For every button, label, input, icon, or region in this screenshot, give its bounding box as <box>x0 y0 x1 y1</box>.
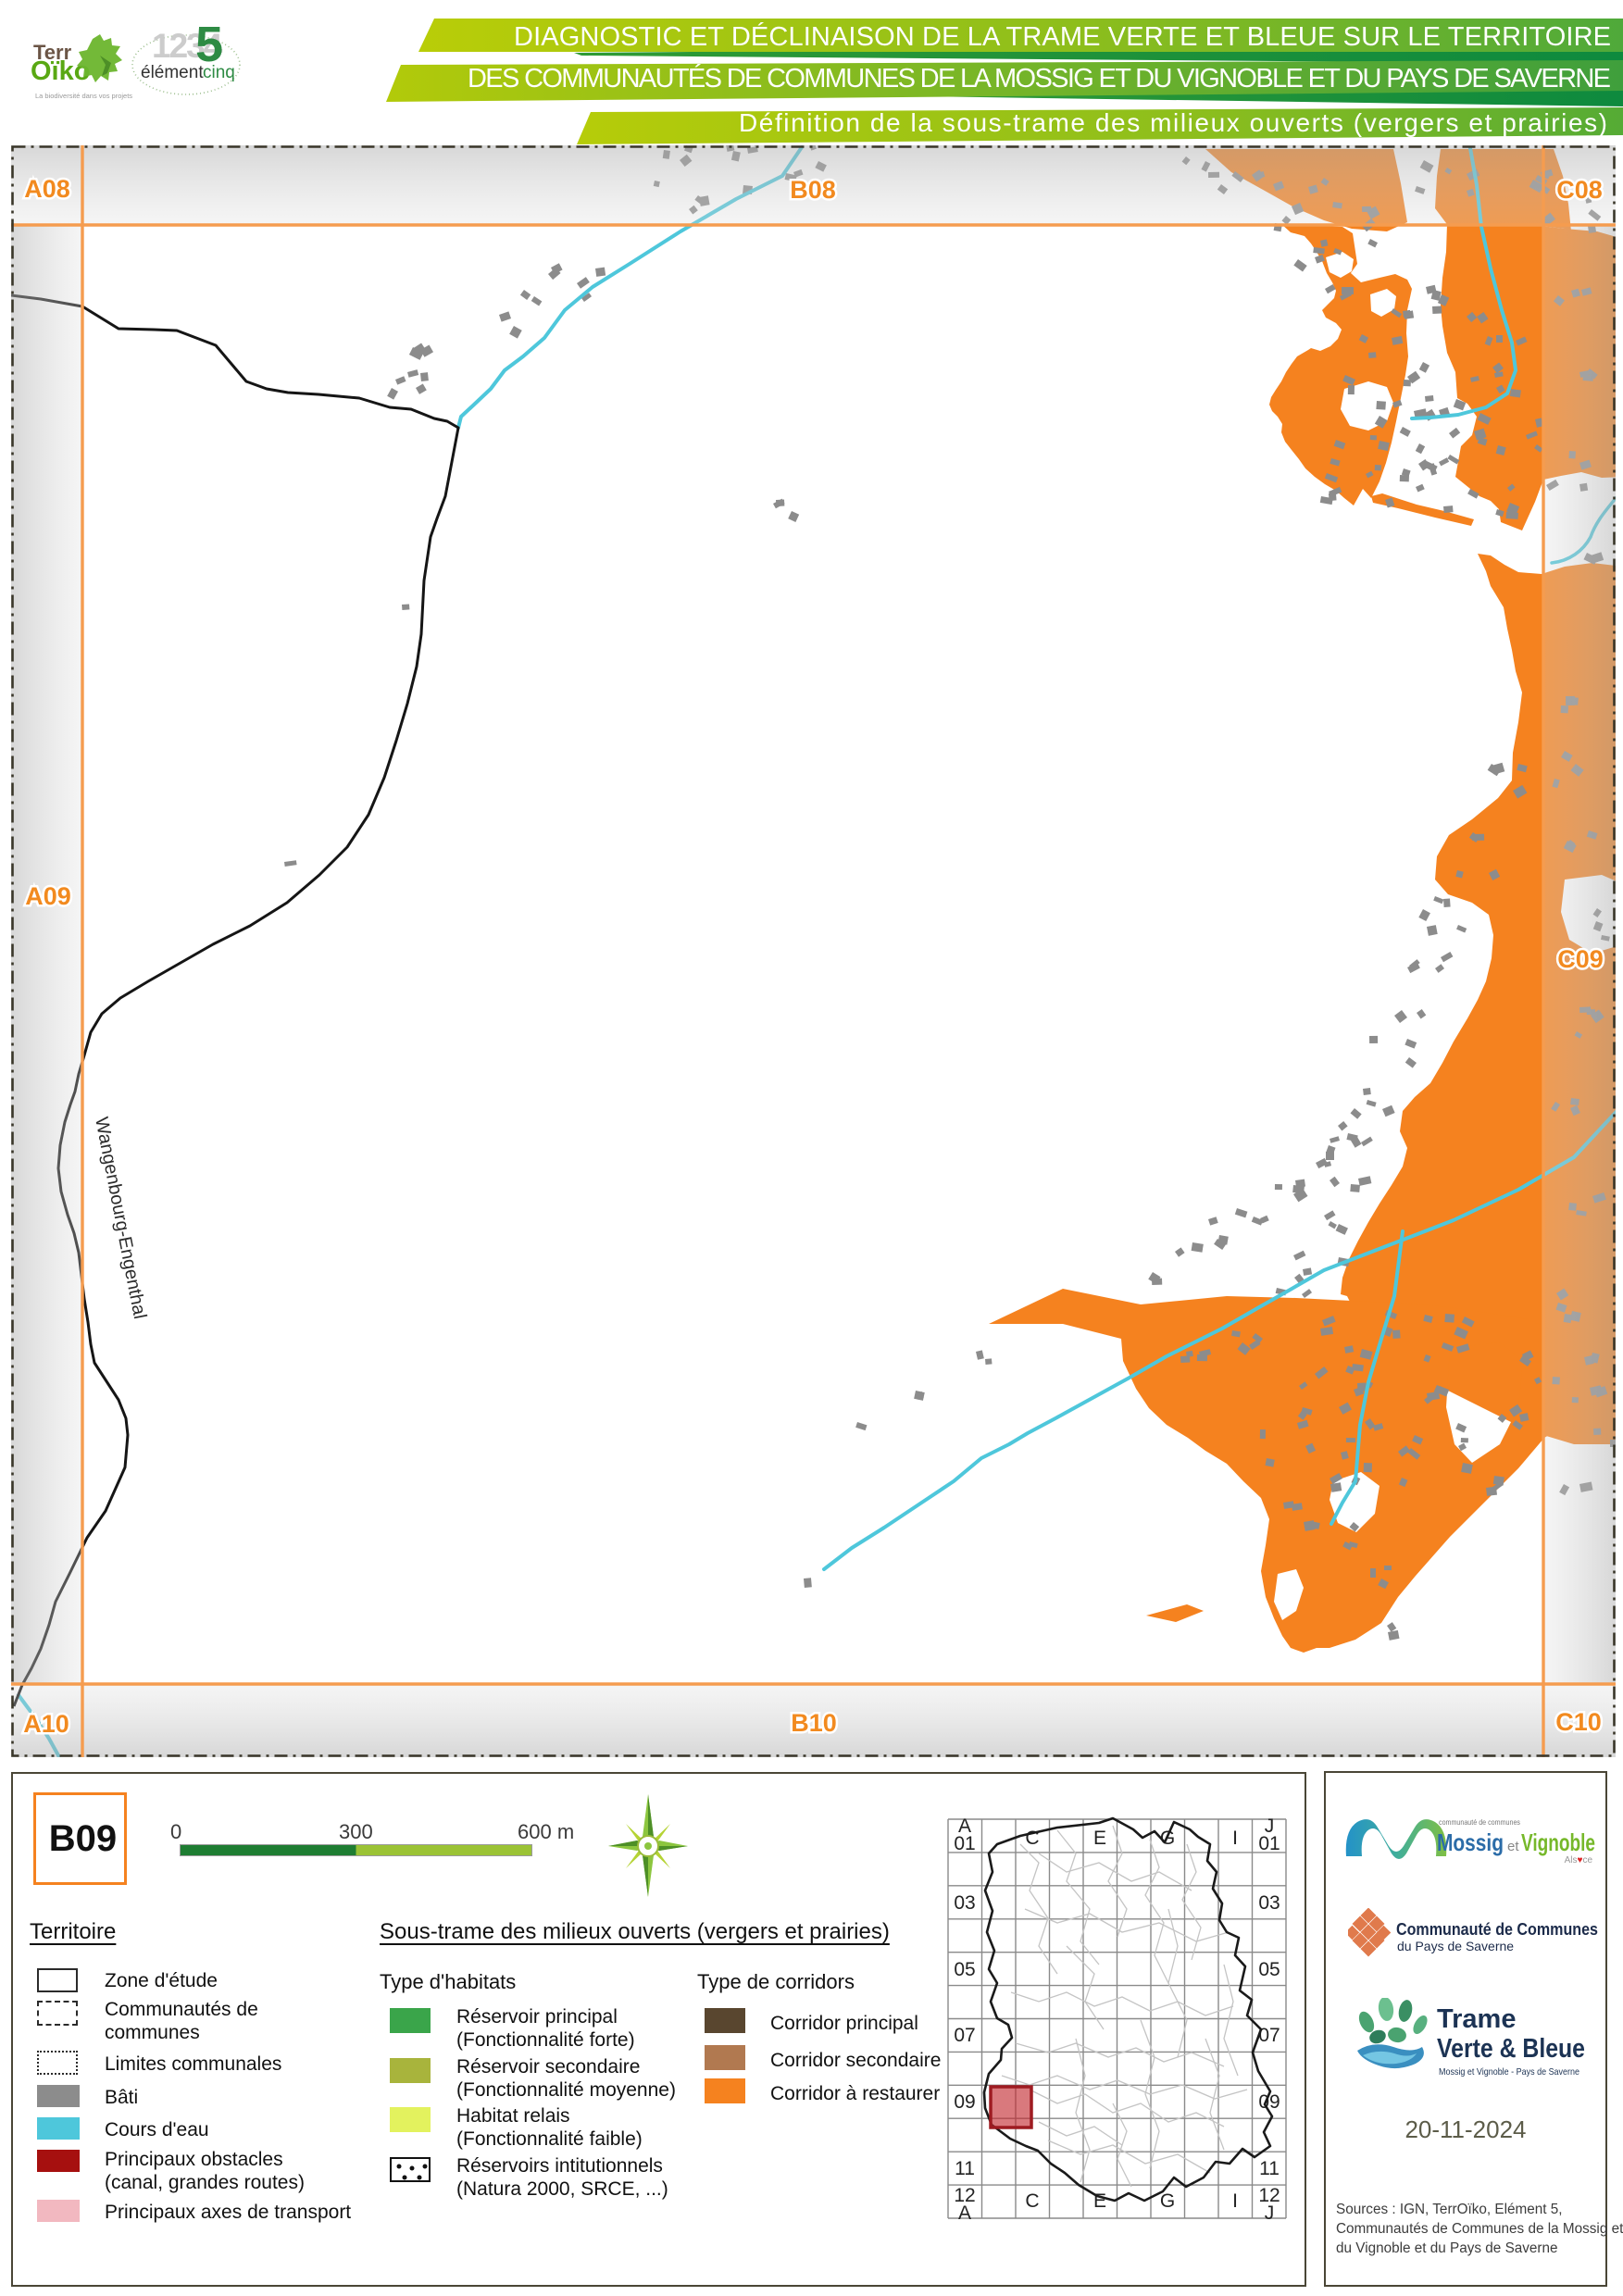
svg-text:E: E <box>1093 1828 1106 1849</box>
svg-text:et: et <box>1507 1839 1519 1854</box>
svg-text:C09: C09 <box>1557 945 1604 973</box>
svg-text:Mossig: Mossig <box>1437 1828 1504 1856</box>
svg-text:03: 03 <box>954 1892 975 1914</box>
svg-text:11: 11 <box>1259 2158 1280 2179</box>
svg-text:Verte & Bleue: Verte & Bleue <box>1437 2034 1585 2064</box>
svg-text:C: C <box>1025 2190 1039 2212</box>
svg-text:A08: A08 <box>24 175 70 203</box>
svg-text:01: 01 <box>954 1833 975 1854</box>
svg-text:07: 07 <box>954 2025 975 2046</box>
svg-text:B08: B08 <box>790 176 836 204</box>
svg-text:07: 07 <box>1258 2025 1280 2046</box>
svg-text:A09: A09 <box>25 882 71 910</box>
svg-text:03: 03 <box>1258 1892 1280 1914</box>
svg-text:cinq: cinq <box>203 63 235 82</box>
svg-text:Vignoble: Vignoble <box>1521 1828 1595 1856</box>
svg-text:élément: élément <box>141 63 204 82</box>
svg-text:Communauté de Communes: Communauté de Communes <box>1396 1920 1598 1939</box>
svg-text:01: 01 <box>1258 1833 1280 1854</box>
svg-text:B10: B10 <box>791 1709 837 1737</box>
svg-text:du Pays de Saverne: du Pays de Saverne <box>1397 1939 1514 1953</box>
svg-text:C08: C08 <box>1556 176 1603 204</box>
svg-text:Trame: Trame <box>1437 2004 1516 2034</box>
svg-text:DIAGNOSTIC ET DÉCLINAISON DE L: DIAGNOSTIC ET DÉCLINAISON DE LA TRAME VE… <box>514 21 1611 52</box>
svg-text:09: 09 <box>954 2091 975 2113</box>
svg-text:05: 05 <box>1258 1959 1280 1980</box>
svg-text:J: J <box>1265 2202 1275 2224</box>
svg-text:A10: A10 <box>23 1710 69 1738</box>
svg-text:11: 11 <box>955 2158 975 2179</box>
svg-text:Als♥ce: Als♥ce <box>1565 1855 1593 1865</box>
svg-text:C: C <box>1025 1828 1039 1849</box>
svg-text:G: G <box>1160 2190 1175 2212</box>
svg-text:La biodiversité dans vos proje: La biodiversité dans vos projets <box>35 92 132 100</box>
svg-text:I: I <box>1232 1828 1238 1849</box>
svg-text:Mossig et Vignoble - Pays de S: Mossig et Vignoble - Pays de Saverne <box>1439 2066 1579 2078</box>
svg-text:A: A <box>958 2202 971 2224</box>
svg-text:C10: C10 <box>1555 1708 1602 1736</box>
svg-text:communauté de communes: communauté de communes <box>1439 1817 1520 1827</box>
svg-text:I: I <box>1232 2190 1238 2212</box>
svg-text:DES COMMUNAUTÉS DE COMMUNES DE: DES COMMUNAUTÉS DE COMMUNES DE LA MOSSIG… <box>468 63 1611 94</box>
svg-text:05: 05 <box>954 1959 975 1980</box>
